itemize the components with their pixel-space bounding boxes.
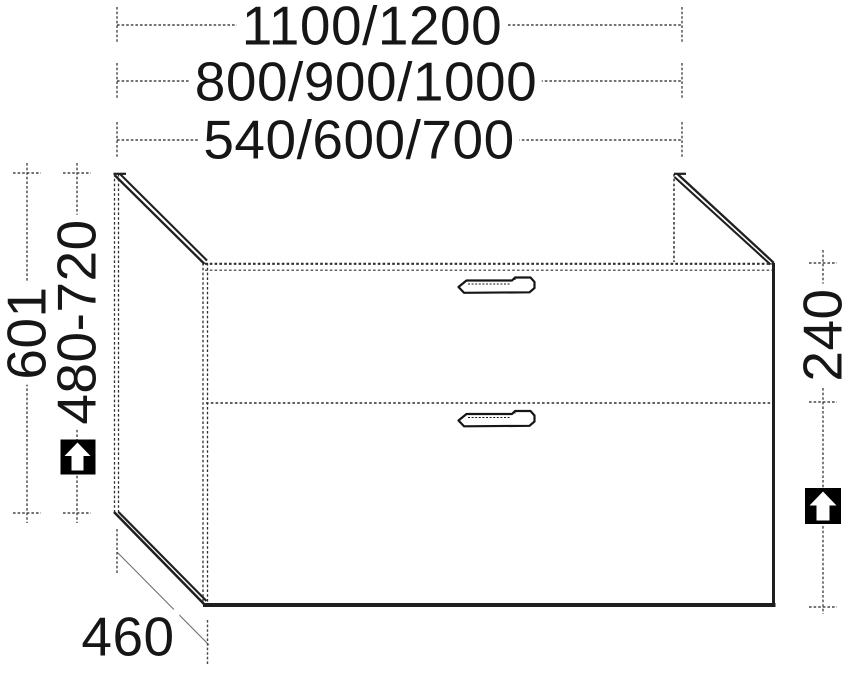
width-dimension-label-1: 1100/1200 [237,0,507,54]
technical-drawing-page: 1100/1200 800/900/1000 540/600/700 601 4… [0,0,862,676]
height-adjustable-icon [805,488,841,524]
handle-outline [459,411,535,426]
panel-bottom-edge [119,512,207,601]
width-dimension-label-2: 800/900/1000 [190,55,542,110]
panel-top-edge [675,177,771,265]
panel-top-edge [115,176,205,265]
top-drawer-handle-icon [459,278,535,293]
panel-top-edge [678,174,774,263]
left-side-panel [114,174,208,605]
right-side-panel [674,174,774,265]
cabinet-outline [114,174,776,606]
adjustable-height-dimension-label: 480-720 [50,214,105,429]
handle-outline [459,278,535,293]
bottom-drawer-handle-icon [459,411,535,426]
drawer-height-dimension-label: 240 [796,283,851,386]
panel-bottom-edge [114,512,204,604]
depth-dimension-label: 460 [76,610,179,665]
width-dimension-label-3: 540/600/700 [198,113,519,168]
panel-top-edge [120,174,208,261]
cabinet-front [203,263,776,605]
height-adjustable-icon [61,440,96,475]
